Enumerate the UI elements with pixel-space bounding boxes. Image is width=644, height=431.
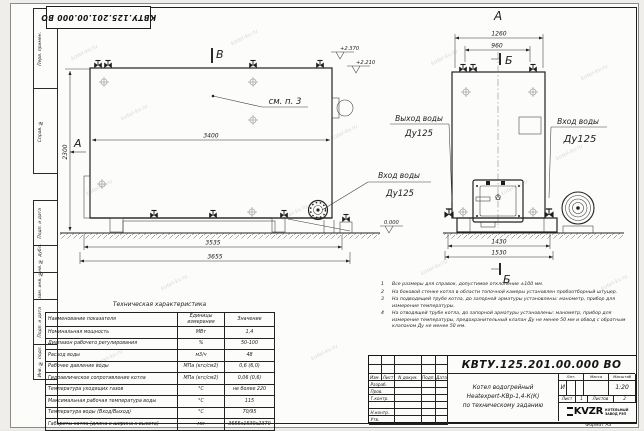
section-label-b-top: Б (505, 54, 513, 67)
row-blank (369, 402, 395, 409)
dim-2300: 2300 (62, 144, 69, 159)
spec-row: Диапазон рабочего регулирования%50-100 (46, 338, 275, 350)
lit-value: И (559, 381, 567, 396)
spec-row: Номинальная мощностьМВт1,4 (46, 327, 275, 339)
spec-table-title: Техническая характеристика (45, 301, 274, 312)
drawing-page: kotel-kv.ru kotel-kv.ru kotel-kv.ru kote… (0, 0, 644, 430)
svg-text:+2.370: +2.370 (340, 46, 360, 52)
section-label-a-side: А (73, 137, 82, 150)
scale-value: 1:20 (609, 381, 636, 396)
side-view: 3400 2300 3535 3655 А В см. п. 3 +2.370 (60, 46, 431, 264)
svg-text:0.000: 0.000 (384, 220, 400, 226)
flue-outlet (332, 98, 353, 118)
callout-see-note-3: см. п. 3 (269, 97, 302, 107)
note-2: 2На боковой стенке котла в области топоч… (381, 290, 636, 297)
dim-3655: 3655 (207, 254, 222, 261)
spec-row: Гидравлическое сопротивление котлаМПа (к… (46, 373, 275, 385)
view-label-a: А (493, 9, 502, 23)
product-line-3: по техническому заданию (463, 402, 544, 411)
svg-text:Выход воды: Выход воды (395, 114, 443, 123)
boiler-body-side (90, 68, 332, 218)
row-razrab: Разраб. (369, 381, 395, 388)
spec-row: Рабочее давление водыМПа (кгс/см2)0,6 (6… (46, 361, 275, 373)
svg-text:Ду125: Ду125 (385, 189, 414, 199)
product-line-1: Котел водогрейный (473, 384, 534, 393)
note-1: 1Все размеры для справок, допустимое отк… (381, 282, 636, 289)
note-4: 4На отводящей трубе котла, до запорной а… (381, 311, 636, 331)
sheets-value: 2 (614, 396, 636, 403)
product-line-2: Heatexpert-КВр-1,4-К(К) (467, 393, 540, 402)
title-block: Изм. Лист N докум. Подп. Дата Разраб. Пр… (368, 355, 637, 423)
dim-1430: 1430 (491, 239, 506, 246)
svg-text:Вход воды: Вход воды (557, 117, 599, 126)
ground-hatch-left (60, 234, 380, 239)
dim-1260: 1260 (491, 31, 506, 38)
company-line-2: ЗАВОД РЭП (605, 412, 626, 416)
elevation-2370: +2.370 (331, 46, 360, 59)
product-name: Котел водогрейный Heatexpert-КВр-1,4-К(К… (448, 374, 559, 421)
side-wall-bracket (84, 176, 90, 218)
inlet-callout-front: Вход воды Ду125 (549, 117, 607, 198)
dim-960: 960 (491, 43, 503, 50)
logo-bars-icon (567, 407, 573, 416)
doc-number: КВТУ.125.201.00.000 ВО (448, 356, 635, 374)
spec-row: Расход водым3/ч48 (46, 350, 275, 362)
col-podp: Подп. (422, 374, 436, 381)
blower-fan (562, 192, 594, 233)
spec-row: Температура воды (Вход/Выход)°С70/95 (46, 407, 275, 419)
sheet-value: 1 (576, 396, 588, 403)
inlet-flange-side (309, 201, 328, 220)
note-3: 3На подводящей трубе котла, до запорной … (381, 297, 636, 310)
logo-text: KVZR (574, 406, 603, 417)
sheets-label: Листов (588, 396, 614, 403)
elevation-zero: 0.000 (380, 220, 403, 233)
dim-3535: 3535 (205, 240, 220, 247)
sight-glass (519, 117, 541, 134)
spec-row: Температура уходящих газов°Сне более 220 (46, 384, 275, 396)
company-logo: KVZR КОТЕЛЬНЫЙЗАВОД РЭП (559, 403, 636, 422)
spec-row: Габариты котла (длина х ширина х высота)… (46, 419, 275, 431)
dim-3400: 3400 (203, 133, 218, 140)
ground-hatch-right (443, 234, 624, 239)
elevation-2210: +2.210 (347, 60, 376, 73)
row-tkontr: Т.контр. (369, 395, 395, 402)
row-nkontr: Н.контр. (369, 409, 395, 416)
inlet-callout-side: Вход воды Ду125 (322, 171, 431, 210)
spec-header-row: Наименование показателя Единицы измерени… (46, 313, 275, 327)
svg-text:Вход воды: Вход воды (378, 171, 420, 180)
mass-value (584, 381, 609, 396)
row-prov: Пров. (369, 388, 395, 395)
dim-1530: 1530 (491, 250, 506, 257)
title-block-right: Лит. Масса Масштаб И 1:20 Лист 1 Листов … (559, 374, 636, 421)
section-label-v: В (216, 48, 224, 61)
col-list: Лист (382, 374, 395, 381)
notes-list: 1Все размеры для справок, допустимое отк… (381, 282, 636, 332)
svg-text:+2.210: +2.210 (356, 60, 376, 66)
spec-table: Техническая характеристика Наименование … (45, 301, 274, 431)
col-izm: Изм. (369, 374, 382, 381)
svg-text:Ду125: Ду125 (404, 129, 433, 139)
spec-row: Максимальная рабочая температура воды°С1… (46, 396, 275, 408)
col-data: Дата (436, 374, 448, 381)
col-ndokum: N докум. (395, 374, 422, 381)
format-note: Формат А3 (560, 423, 637, 428)
front-view: А 1260 960 Б Б (390, 9, 624, 286)
svg-text:Ду125: Ду125 (563, 134, 597, 145)
row-utv: Утв. (369, 416, 395, 425)
sheet-label: Лист (559, 396, 576, 403)
title-block-signatures: Изм. Лист N докум. Подп. Дата Разраб. Пр… (369, 356, 448, 422)
